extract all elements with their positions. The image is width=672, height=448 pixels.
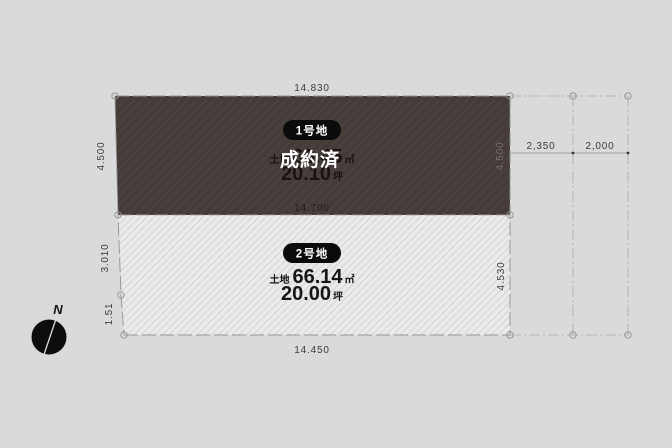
dim-left-lower: 1.51 (104, 303, 115, 326)
plan-canvas: 14.830 14.700 14.450 4.500 3.010 1.51 4.… (0, 0, 672, 448)
plot1-badge-label: 1号地 (296, 124, 328, 138)
dim-left-upper: 4.500 (96, 141, 107, 170)
dim-right-upper: 4.500 (495, 141, 506, 170)
lot-plan-drawing: 14.830 14.700 14.450 4.500 3.010 1.51 4.… (0, 0, 672, 448)
dim-right-lower: 4.530 (496, 261, 507, 290)
dim-offset-right: 2,000 (585, 141, 614, 152)
dim-top-width: 14.830 (294, 83, 329, 94)
dim-offset-left: 2,350 (526, 141, 555, 152)
dim-bottom-width: 14.450 (294, 345, 329, 356)
north-compass: N (32, 302, 67, 356)
north-label: N (53, 302, 63, 317)
dim-middle-width: 14.700 (294, 203, 329, 214)
plot2-badge-label: 2号地 (296, 247, 328, 261)
dimension-tick (627, 152, 630, 155)
plot1-status-label: 成約済 (280, 148, 340, 171)
compass-circle-icon (32, 320, 67, 355)
dimension-tick (572, 152, 575, 155)
dim-left-middle: 3.010 (100, 243, 111, 272)
